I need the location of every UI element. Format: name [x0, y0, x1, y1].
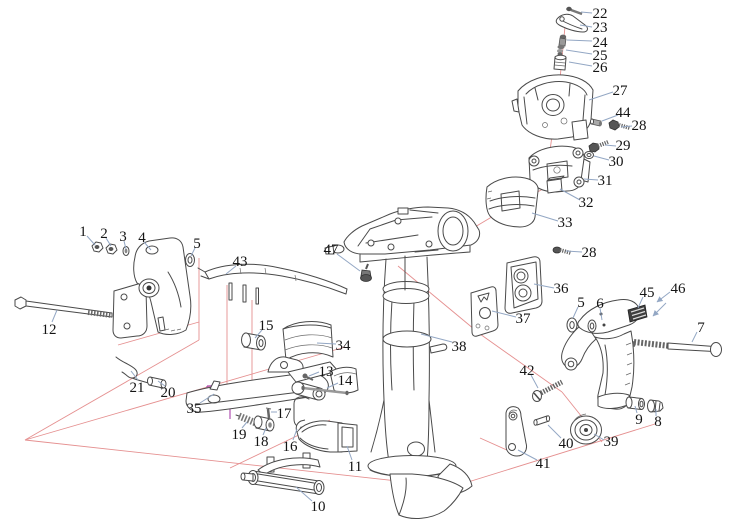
- leader-line-12: [52, 310, 57, 322]
- part-label-29: 29: [616, 138, 631, 154]
- part-label-31: 31: [598, 173, 613, 189]
- part-label-11: 11: [348, 459, 362, 475]
- part-label-7: 7: [697, 320, 705, 336]
- lower-mount-bracket-10: [241, 453, 324, 495]
- screw-42: [533, 382, 563, 402]
- leader-line-26: [569, 62, 592, 66]
- part-label-17: 17: [277, 406, 293, 422]
- washer-30: [585, 152, 594, 159]
- leader-line-28: [566, 251, 582, 252]
- washer-5-left: [186, 254, 195, 267]
- leader-line-24: [567, 40, 592, 41]
- part-label-9: 9: [635, 412, 643, 428]
- bolt-7: [633, 341, 722, 357]
- clamp-bracket-right-6: [562, 299, 640, 409]
- part-label-28: 28: [632, 118, 647, 134]
- leader-line-28: [621, 126, 632, 127]
- part-label-40: 40: [559, 436, 574, 452]
- screw-22: [566, 7, 582, 14]
- lever-23: [556, 14, 587, 32]
- washer-stack-25: [557, 45, 565, 56]
- part-label-33: 33: [558, 215, 573, 231]
- arrow-leader-line: [657, 292, 670, 302]
- bolt-29: [589, 142, 608, 152]
- part-label-13: 13: [319, 364, 334, 380]
- swivel-bracket-body: [325, 207, 480, 290]
- part-label-45: 45: [640, 285, 655, 301]
- part-label-16: 16: [283, 439, 299, 455]
- pin-44: [591, 119, 603, 126]
- part-label-34: 34: [336, 338, 352, 354]
- part-label-21: 21: [130, 380, 145, 396]
- part-label-26: 26: [593, 60, 609, 76]
- roller-39: [571, 414, 602, 444]
- part-label-44: 44: [616, 105, 632, 121]
- spring-19: [236, 415, 256, 423]
- bolt-47: [361, 264, 372, 282]
- part-label-39: 39: [604, 434, 619, 450]
- part-label-35: 35: [187, 401, 202, 417]
- leader-line-7: [692, 332, 697, 342]
- part-label-27: 27: [613, 83, 629, 99]
- leader-line-30: [594, 156, 609, 160]
- cam-18: [254, 416, 274, 431]
- part-label-6: 6: [596, 296, 604, 312]
- leader-line-1: [87, 236, 95, 245]
- part-label-5: 5: [577, 295, 585, 311]
- part-label-12: 12: [42, 322, 57, 338]
- pin-40: [534, 416, 550, 426]
- part-label-14: 14: [338, 373, 354, 389]
- bolt-28-mid: [553, 247, 571, 253]
- link-plate-41: [506, 407, 527, 456]
- leader-line-25: [566, 50, 592, 54]
- part-label-15: 15: [259, 318, 274, 334]
- grommet-housing-36: [505, 257, 542, 314]
- part-label-19: 19: [232, 427, 247, 443]
- leader-line-47: [337, 254, 360, 271]
- nut-2: [106, 244, 117, 254]
- part-label-46: 46: [671, 281, 687, 297]
- axis-line: [452, 424, 655, 487]
- part-label-28: 28: [582, 245, 597, 261]
- part-label-20: 20: [161, 385, 176, 401]
- mount-band-34: [283, 322, 333, 360]
- part-label-30: 30: [609, 154, 624, 170]
- bolt-24: [559, 35, 566, 46]
- bushing-26: [554, 55, 566, 70]
- arrow-leader-line: [653, 303, 666, 316]
- leader-line-29: [605, 145, 616, 146]
- part-label-4: 4: [138, 230, 146, 246]
- part-label-43: 43: [233, 254, 248, 270]
- part-label-18: 18: [254, 434, 269, 450]
- part-label-47: 47: [324, 242, 340, 258]
- part-label-23: 23: [593, 20, 608, 36]
- part-label-2: 2: [100, 226, 108, 242]
- bushing-15: [242, 333, 266, 350]
- left-clamp-group: [15, 238, 195, 388]
- lower-mount-housing-33: [486, 177, 538, 227]
- rail-43: [198, 264, 347, 304]
- part-label-42: 42: [520, 363, 535, 379]
- right-clamp-group: [506, 299, 722, 456]
- part-label-3: 3: [119, 229, 127, 245]
- exploded-diagram-canvas: 1234512212035191817161314154334473811102…: [0, 0, 742, 527]
- part-label-41: 41: [536, 456, 551, 472]
- part-label-10: 10: [311, 499, 326, 515]
- bolt-12: [15, 297, 112, 317]
- part-label-32: 32: [579, 195, 594, 211]
- part-label-38: 38: [452, 339, 467, 355]
- bolt-28-top: [609, 120, 630, 130]
- part-label-8: 8: [654, 414, 662, 430]
- upper-mount-housing-27: [512, 75, 593, 140]
- nut-8: [648, 400, 664, 412]
- part-label-37: 37: [516, 311, 532, 327]
- pin-17: [266, 408, 271, 418]
- leader-line-33: [532, 213, 558, 221]
- leader-line-22: [581, 12, 592, 13]
- part-label-36: 36: [554, 281, 570, 297]
- part-label-5: 5: [193, 236, 201, 252]
- part-label-1: 1: [79, 224, 87, 240]
